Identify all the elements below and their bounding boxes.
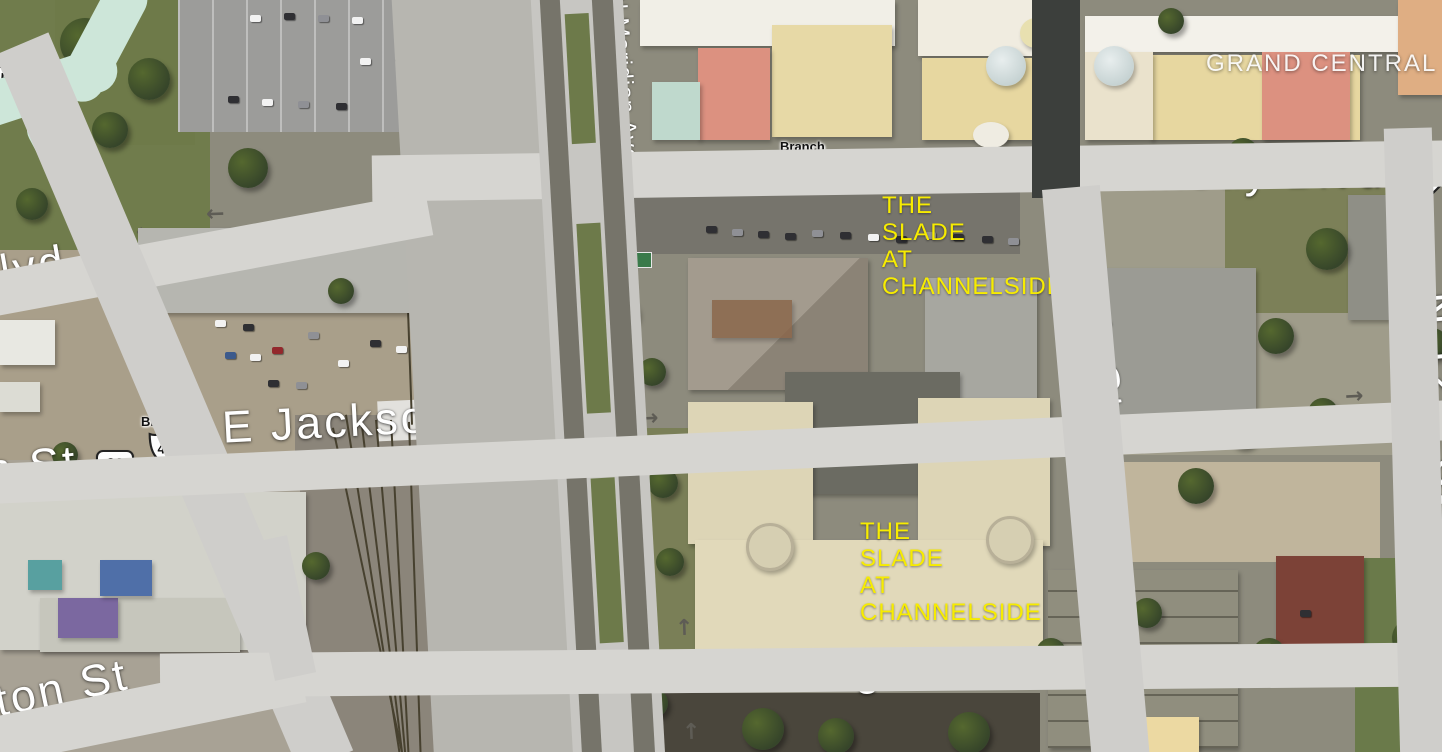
meridian-median-3	[591, 477, 624, 643]
tree	[228, 148, 268, 188]
car	[370, 340, 381, 347]
car	[396, 346, 407, 353]
road-arrow-icon: →	[206, 202, 225, 225]
car	[296, 382, 307, 389]
car	[812, 230, 823, 237]
red-brick-building	[1276, 556, 1364, 648]
tree	[302, 552, 330, 580]
tree	[742, 708, 784, 750]
small-building-nebraska-1	[0, 320, 55, 365]
tree	[948, 712, 990, 752]
place-label-slade-upper: THE SLADE AT CHANNELSIDE	[882, 192, 1064, 300]
tree	[1158, 8, 1184, 34]
tree	[92, 112, 128, 148]
car	[268, 380, 279, 387]
car	[250, 354, 261, 361]
eleventh-st-shadow	[1032, 0, 1080, 198]
tree	[818, 718, 854, 752]
car	[215, 320, 226, 327]
car	[758, 231, 769, 238]
condo-west-salmon	[698, 48, 770, 140]
tree	[1306, 228, 1348, 270]
slade-wing-west	[688, 402, 813, 544]
warehouse-rust-patch	[712, 300, 792, 338]
grand-central-east-roofband	[1085, 16, 1442, 52]
playground-purple	[58, 598, 118, 638]
car	[840, 232, 851, 239]
car	[262, 99, 273, 106]
car	[336, 103, 347, 110]
car	[868, 234, 879, 241]
car	[338, 360, 349, 367]
round-plaza	[973, 122, 1009, 148]
car	[272, 347, 283, 354]
place-label-slade-lower: THE SLADE AT CHANNELSIDE	[860, 518, 1042, 626]
condo-west-yellow	[772, 25, 892, 137]
car	[360, 58, 371, 65]
car	[318, 15, 329, 22]
playground-blue	[100, 560, 152, 596]
road-arrow-icon: →	[681, 721, 704, 740]
tree	[1178, 468, 1214, 504]
tree	[128, 58, 170, 100]
road-arrow-icon: →	[674, 617, 697, 636]
tree	[16, 188, 48, 220]
car	[228, 96, 239, 103]
car	[352, 17, 363, 24]
car	[308, 332, 319, 339]
tree	[1258, 318, 1294, 354]
car	[298, 101, 309, 108]
car	[250, 15, 261, 22]
meridian-median-1	[565, 13, 596, 144]
aerial-map-canvas[interactable]: →→→→→→→→→→→→→→→→→	[0, 0, 1442, 752]
playground-teal	[28, 560, 62, 590]
slade-roundel-west	[746, 523, 794, 571]
car	[732, 229, 743, 236]
car	[706, 226, 717, 233]
building-top-far-right	[1398, 0, 1442, 95]
tree	[656, 548, 684, 576]
glass-turret-west	[986, 46, 1026, 86]
small-building-nebraska-2	[0, 382, 40, 412]
car	[243, 324, 254, 331]
car	[225, 352, 236, 359]
car	[785, 233, 796, 240]
car	[284, 13, 295, 20]
tree	[328, 278, 354, 304]
car	[1300, 610, 1311, 617]
glass-turret-east	[1094, 46, 1134, 86]
place-label-grand-central: GRAND CENTRAL	[1206, 50, 1437, 78]
condo-west-teal	[652, 82, 700, 140]
